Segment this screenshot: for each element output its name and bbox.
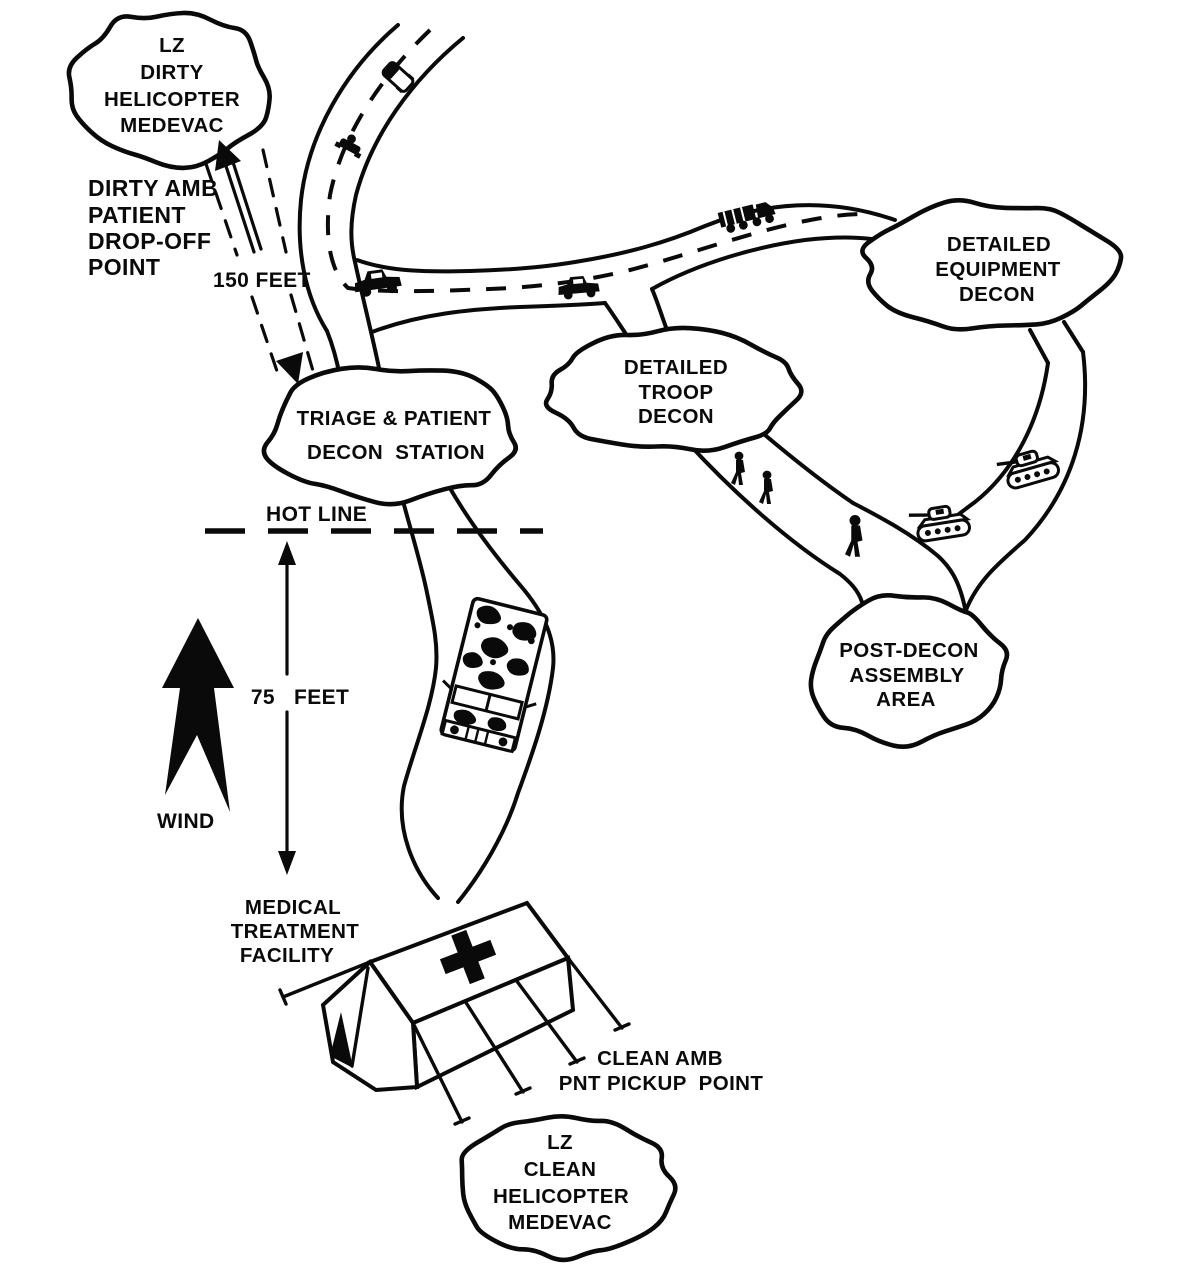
road-equip-stem-left [1030, 330, 1048, 363]
person-icon-2 [759, 471, 773, 504]
road-troop-stem-right [652, 289, 667, 330]
person-icon-3 [845, 515, 863, 557]
lz-clean-label-2: CLEAN [524, 1158, 597, 1181]
road-east-bottom-edge-1 [372, 303, 605, 332]
lz-dirty-label-3: HELICOPTER [104, 88, 240, 111]
path-troop-to-post-left-edge [688, 443, 862, 602]
road-mtf-left-edge [400, 490, 438, 898]
mtf-label-2: TREATMENT [231, 920, 360, 943]
troop-decon-label-2: TROOP [639, 381, 714, 404]
equip-decon-label-3: DECON [959, 283, 1035, 306]
route-solid-shaft-b [231, 156, 261, 249]
dirty-amb-label-1: DIRTY AMB [88, 175, 218, 201]
measure-arrowhead-down [278, 851, 296, 875]
triage-label-2: DECON STATION [307, 441, 485, 464]
clean-amb-label-2: PNT PICKUP POINT [559, 1072, 764, 1095]
measure-arrowhead-up [278, 541, 296, 565]
post-decon-label-3: AREA [876, 688, 936, 711]
tank-icon-2 [908, 503, 970, 543]
mtf-label-3: FACILITY [240, 944, 334, 967]
clean-amb-label-1: CLEAN AMB [597, 1047, 723, 1070]
route-solid-shaft-a [224, 160, 254, 252]
route-dash-left-lower [252, 297, 280, 380]
diagram-canvas: LZ DIRTY HELICOPTER MEDEVAC DIRTY AMB PA… [0, 0, 1200, 1264]
troop-decon-label-3: DECON [638, 405, 714, 428]
tent-guy-rope-r1 [568, 958, 622, 1028]
road-centerline-dashes [328, 30, 862, 291]
troop-decon-label-1: DETAILED [624, 356, 728, 379]
equip-decon-label-1: DETAILED [947, 233, 1051, 256]
dirty-amb-label-4: POINT [88, 254, 160, 280]
dirty-amb-label-2: PATIENT [88, 202, 186, 228]
small-vehicle-icon [334, 129, 367, 158]
wind-arrow-icon [162, 618, 234, 812]
area-triage-decon-station [264, 367, 516, 504]
post-decon-label-1: POST-DECON [839, 639, 979, 662]
triage-label-1: TRIAGE & PATIENT [297, 407, 492, 430]
distance-150-label: 150 FEET [213, 269, 311, 292]
dirty-amb-label-3: DROP-OFF [88, 228, 211, 254]
dirty-route-150ft [206, 140, 313, 384]
lz-clean-label-4: MEDEVAC [508, 1211, 612, 1234]
lz-dirty-label-1: LZ [159, 34, 185, 57]
person-icon-1 [731, 452, 745, 485]
hot-line-label: HOT LINE [266, 503, 367, 526]
road-main-inner-edge [351, 38, 463, 262]
distance-75-unit: FEET [294, 686, 349, 709]
wind-label: WIND [157, 810, 215, 833]
route-dash-right-upper [263, 150, 286, 252]
route-arrowhead-down [276, 352, 303, 384]
distance-75-value: 75 [251, 686, 275, 709]
equip-decon-label-2: EQUIPMENT [935, 258, 1061, 281]
road-main-outer-edge [300, 25, 398, 377]
road-equip-post-left-edge [938, 363, 1048, 532]
road-equip-stem-right [1064, 322, 1083, 352]
post-decon-label-2: ASSEMBLY [849, 664, 964, 687]
mtf-label-1: MEDICAL [245, 896, 341, 919]
lz-dirty-label-4: MEDEVAC [120, 114, 224, 137]
lz-clean-label-3: HELICOPTER [493, 1185, 629, 1208]
lz-clean-label-1: LZ [547, 1131, 573, 1154]
lz-dirty-label-2: DIRTY [140, 61, 204, 84]
decon-site-diagram: LZ DIRTY HELICOPTER MEDEVAC DIRTY AMB PA… [0, 0, 1200, 1264]
path-troop-to-post-right-edge [759, 430, 853, 503]
